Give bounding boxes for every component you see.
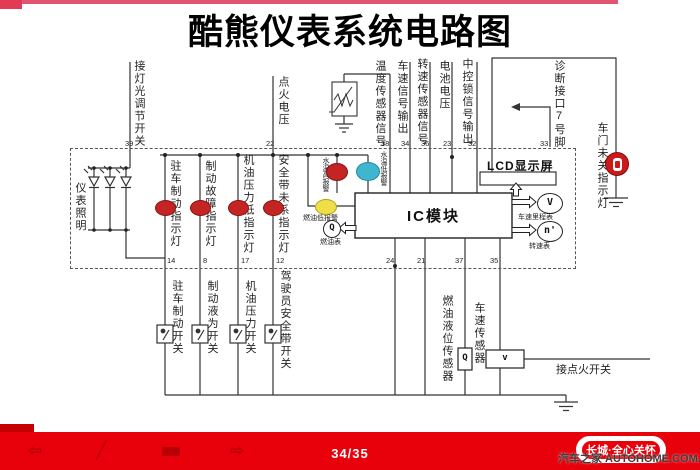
pin-8: 8	[203, 256, 207, 265]
pin-37: 37	[455, 256, 463, 265]
label-battery-voltage: 电池电压	[438, 60, 450, 110]
pin-21: 21	[417, 256, 425, 265]
pin-36: 36	[421, 139, 429, 148]
label-to-ignition-switch: 接点火开关	[556, 361, 611, 377]
label-parking-switch: 驻车制动开关	[171, 280, 183, 355]
label-lcd-display: LCD显示屏	[487, 157, 554, 174]
pin-38: 38	[381, 139, 389, 148]
ic-module: IC模块	[355, 193, 512, 238]
pin-22: 22	[266, 139, 274, 148]
parking-brake-telltale-icon	[155, 200, 176, 216]
pin-39: 39	[125, 139, 133, 148]
pin-12: 12	[276, 256, 284, 265]
fuel-low-warning-icon	[315, 199, 337, 215]
coolant-low-warning-icon	[356, 162, 380, 181]
label-speed-sensor: 车速传感器	[473, 302, 485, 365]
fuel-gauge-symbol: Q	[323, 220, 341, 238]
brake-fault-telltale-icon	[190, 200, 211, 216]
label-diagnostic-pin7: 诊断接口7号脚	[553, 60, 565, 149]
pin-23: 23	[443, 139, 451, 148]
pin-24: 24	[386, 256, 394, 265]
label-speed-signal-out: 车速信号输出	[396, 60, 408, 135]
pin-32: 32	[468, 139, 476, 148]
tachometer-gauge-symbol: n'	[537, 221, 563, 242]
label-fuel-gauge: 燃油表	[320, 237, 341, 247]
label-fuel-level-sensor: 燃油液位传感器	[441, 295, 453, 383]
pin-17: 17	[241, 256, 249, 265]
label-light-adjust-switch: 接灯光调节开关	[133, 60, 145, 148]
pin-34: 34	[401, 139, 409, 148]
label-brake-fluid-switch: 制动液为开关	[206, 280, 218, 355]
pin-14: 14	[167, 256, 175, 265]
pin-33: 33	[540, 139, 548, 148]
label-coolant-low-warning: 水温低报警	[379, 151, 387, 186]
site-watermark: 汽车之家 AUTOHOME.COM.CN	[558, 450, 700, 466]
label-ignition-voltage: 点火电压	[277, 76, 289, 126]
speed-sensor-symbol: v	[486, 353, 524, 363]
pin-35: 35	[490, 256, 498, 265]
slide-viewer: 酷熊仪表系统电路图	[0, 0, 700, 470]
label-central-lock-out: 中控锁信号输出	[461, 58, 473, 146]
coolant-high-warning-icon	[326, 163, 348, 181]
oil-pressure-telltale-icon	[228, 200, 249, 216]
label-temp-sensor-signal: 温度传感器信号	[374, 60, 386, 148]
label-driver-belt-switch: 驾驶员安全带开关	[279, 270, 291, 370]
seatbelt-telltale-icon	[263, 200, 284, 216]
fuel-level-sensor-symbol: Q	[458, 353, 472, 363]
label-tacho-sensor-signal: 转速传感器信号	[416, 58, 428, 146]
speedometer-gauge-symbol: V	[537, 193, 563, 214]
door-ajar-telltale-icon	[605, 152, 629, 176]
label-illumination: 仪表照明	[74, 182, 86, 232]
label-oil-pressure-switch: 机油压力开关	[244, 280, 256, 355]
label-tachometer: 转速表	[529, 241, 550, 251]
